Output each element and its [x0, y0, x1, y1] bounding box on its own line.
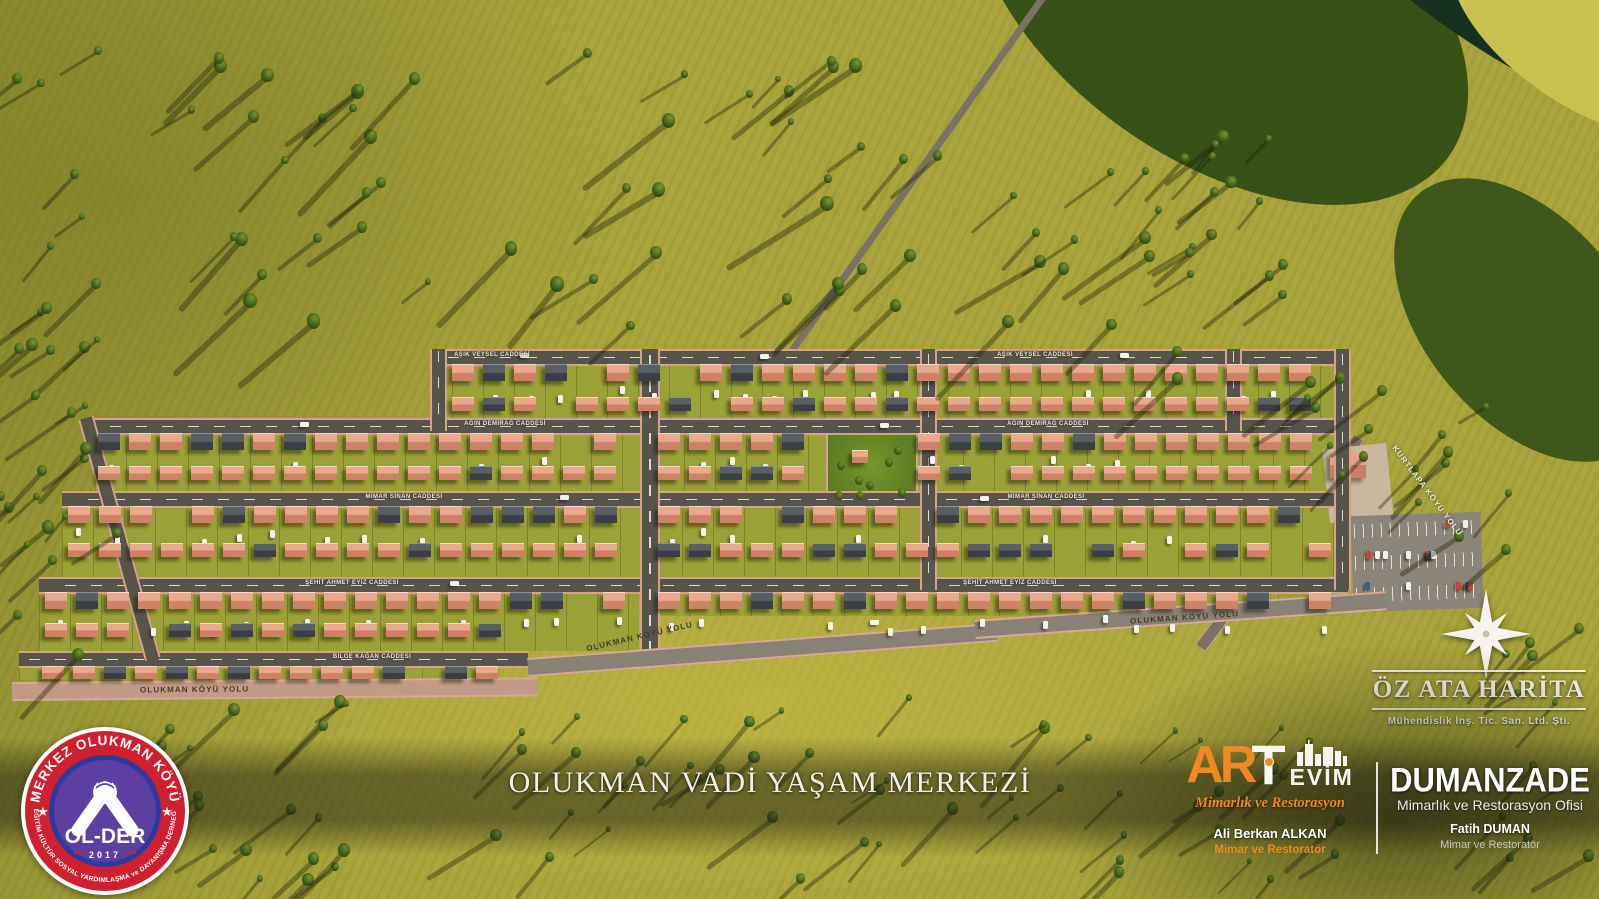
house	[129, 466, 151, 480]
house	[439, 433, 461, 450]
tree	[1212, 140, 1219, 148]
artevim-brand-evim: EVİM	[1290, 766, 1354, 789]
house	[1309, 543, 1331, 557]
house	[169, 592, 191, 609]
house	[347, 506, 369, 523]
house	[1103, 364, 1125, 381]
house	[720, 592, 742, 609]
car	[554, 618, 559, 626]
artevim-brand-ar: AR	[1186, 742, 1253, 789]
house	[346, 466, 368, 480]
house	[501, 466, 523, 480]
house	[1103, 397, 1125, 411]
house	[1135, 433, 1157, 450]
house	[751, 543, 773, 557]
street-label: ŞEHİT AHMET EYİZ CADDESİ	[305, 580, 399, 586]
tree-shadow	[545, 53, 589, 87]
house	[658, 592, 680, 609]
tree	[849, 58, 862, 73]
house	[576, 397, 598, 411]
house	[98, 466, 120, 480]
house	[658, 466, 680, 480]
car	[151, 628, 156, 636]
tree-shadow	[753, 710, 783, 731]
tree	[1217, 130, 1229, 143]
car	[730, 457, 735, 465]
tree-shadow	[876, 698, 910, 739]
tree-shadow	[704, 94, 751, 126]
dumanzade-person-title: Mimar ve Restoratör	[1387, 839, 1593, 851]
house	[160, 466, 182, 480]
tree	[376, 177, 386, 188]
tree	[652, 182, 665, 197]
car	[560, 495, 569, 500]
house	[824, 397, 846, 411]
svg-text:OL-DER: OL-DER	[65, 825, 146, 848]
parked-car	[1375, 551, 1380, 559]
house	[532, 433, 554, 450]
house	[1216, 543, 1238, 557]
house	[793, 364, 815, 381]
tree	[626, 321, 634, 330]
house	[844, 506, 866, 523]
tree	[12, 73, 22, 84]
tree	[0, 491, 5, 501]
house	[844, 592, 866, 609]
tree-shadow	[0, 615, 19, 672]
tree	[857, 142, 865, 151]
house	[918, 466, 940, 480]
tree	[519, 728, 526, 736]
house	[1011, 433, 1033, 450]
house	[378, 543, 400, 557]
tree-shadow	[826, 146, 862, 174]
tree-shadow	[238, 160, 286, 214]
tree	[1206, 229, 1217, 241]
house	[452, 397, 474, 411]
house	[222, 466, 244, 480]
house	[855, 364, 877, 381]
house	[377, 433, 399, 450]
house	[875, 543, 897, 557]
older-association-badge: MERKEZ OLUKMAN KÖYÜ EĞİTİM KÜLTÜR SOSYAL…	[20, 726, 190, 896]
house	[782, 466, 804, 480]
house	[937, 543, 959, 557]
tree	[80, 442, 92, 455]
tree	[933, 150, 943, 161]
house	[130, 543, 152, 557]
house	[192, 543, 214, 557]
park-tree	[837, 461, 845, 470]
house	[1165, 397, 1187, 411]
house	[355, 592, 377, 609]
house	[324, 623, 346, 637]
tree	[91, 278, 101, 289]
house	[948, 397, 970, 411]
house	[253, 433, 275, 450]
house	[1061, 592, 1083, 609]
tree	[796, 873, 806, 884]
car	[980, 496, 989, 501]
house	[1092, 543, 1114, 557]
house	[409, 543, 431, 557]
house	[1135, 466, 1157, 480]
house	[160, 433, 182, 450]
tree	[1265, 135, 1271, 142]
tree	[362, 187, 372, 198]
house	[316, 543, 338, 557]
street-label: AĞIN DEMİRAĞ CADDESİ	[464, 421, 546, 427]
tree	[681, 70, 688, 78]
car	[300, 422, 309, 427]
tree-shadow	[582, 120, 670, 191]
car	[730, 535, 735, 543]
house	[1154, 592, 1176, 609]
tree-shadow	[276, 237, 319, 271]
house	[638, 397, 660, 411]
tree-shadow	[43, 284, 98, 339]
tree	[353, 84, 364, 96]
house	[440, 543, 462, 557]
house	[1123, 592, 1145, 609]
house	[445, 666, 467, 679]
house	[1185, 592, 1207, 609]
tree	[1002, 315, 1014, 328]
street-label: MİMAR SİNAN CADDESİ	[366, 494, 443, 500]
car	[237, 534, 242, 542]
car	[1051, 456, 1056, 464]
house	[532, 466, 554, 480]
house	[355, 623, 377, 637]
tree-shadow	[575, 252, 658, 325]
tree	[746, 90, 754, 98]
house	[293, 623, 315, 637]
house	[1010, 397, 1032, 411]
house	[479, 592, 501, 609]
house	[73, 666, 95, 679]
house	[1259, 466, 1281, 480]
house	[1042, 466, 1064, 480]
house	[197, 666, 219, 679]
house	[470, 466, 492, 480]
house	[408, 466, 430, 480]
artevim-brand-t: T	[1251, 741, 1285, 789]
tree	[662, 113, 675, 128]
car	[270, 530, 275, 538]
house	[169, 623, 191, 637]
tree	[824, 174, 832, 183]
house	[720, 506, 742, 523]
house	[594, 433, 616, 450]
tree	[574, 713, 580, 720]
house	[377, 466, 399, 480]
house	[1185, 506, 1207, 523]
house	[448, 623, 470, 637]
tree	[82, 402, 88, 409]
house	[1104, 466, 1126, 480]
house	[501, 433, 523, 450]
credit-divider	[1376, 762, 1378, 854]
house	[658, 543, 680, 557]
car	[620, 386, 625, 394]
tree-shadow	[236, 321, 316, 390]
house	[254, 506, 276, 523]
house	[1042, 433, 1064, 450]
tree-shadow	[435, 249, 513, 329]
house	[45, 592, 67, 609]
tree-shadow	[22, 246, 52, 282]
tree	[1139, 231, 1151, 244]
house	[968, 506, 990, 523]
house	[545, 364, 567, 381]
parked-car	[1406, 582, 1411, 590]
house	[700, 364, 722, 381]
tree-shadow	[1017, 269, 1065, 324]
tree	[257, 875, 263, 882]
car	[880, 423, 889, 428]
house	[1216, 506, 1238, 523]
house	[669, 397, 691, 411]
tree	[820, 196, 834, 212]
house	[315, 466, 337, 480]
house	[352, 666, 374, 679]
street-label: AŞIK VEYSEL CADDESİ	[454, 352, 530, 358]
house	[813, 543, 835, 557]
tree	[1032, 228, 1040, 237]
tree-shadow	[53, 216, 82, 238]
dumanzade-person: Fatih DUMAN	[1387, 822, 1593, 836]
tree-shadow	[1113, 171, 1146, 207]
house	[378, 506, 400, 523]
street-label: MİMAR SİNAN CADDESİ	[1008, 494, 1085, 500]
tree	[1071, 235, 1079, 244]
house	[999, 592, 1021, 609]
tree	[257, 269, 267, 280]
house	[476, 666, 498, 679]
house	[1073, 466, 1095, 480]
tree	[281, 156, 289, 165]
house	[603, 592, 625, 609]
tree	[1107, 168, 1114, 176]
street-label: ŞEHİT AHMET EYİZ CADDESİ	[963, 580, 1057, 586]
tree	[248, 110, 260, 123]
tree	[906, 694, 912, 700]
house	[200, 592, 222, 609]
house	[658, 506, 680, 523]
car	[828, 622, 833, 630]
tree	[680, 715, 687, 723]
tree	[650, 246, 662, 259]
house	[875, 592, 897, 609]
house	[45, 623, 67, 637]
skyline-icon	[1296, 740, 1348, 766]
tree	[261, 68, 274, 82]
tree	[313, 233, 322, 243]
tree	[67, 407, 76, 417]
tree	[357, 221, 368, 233]
park-pavilion	[852, 450, 868, 463]
tree	[1225, 176, 1237, 189]
house	[285, 543, 307, 557]
tree	[622, 183, 631, 193]
house	[689, 592, 711, 609]
tree-shadow	[233, 878, 261, 899]
tree-shadow	[59, 50, 99, 76]
tree	[188, 105, 195, 113]
house	[200, 623, 222, 637]
house	[689, 466, 711, 480]
house	[1011, 466, 1033, 480]
car	[870, 620, 879, 625]
house	[689, 543, 711, 557]
tree	[112, 528, 121, 538]
house	[875, 506, 897, 523]
house	[751, 433, 773, 450]
house	[731, 364, 753, 381]
house	[192, 506, 214, 523]
house	[533, 543, 555, 557]
car	[558, 395, 563, 403]
house	[949, 466, 971, 480]
house	[782, 506, 804, 523]
tree	[1155, 206, 1162, 214]
tree	[1187, 270, 1195, 279]
house	[161, 543, 183, 557]
house	[980, 433, 1002, 450]
house	[231, 623, 253, 637]
star-icon: ★	[37, 804, 49, 819]
tree	[214, 52, 224, 63]
street-label: BİLGE KAĞAN CADDESİ	[333, 654, 411, 660]
svg-text:2017: 2017	[89, 850, 121, 860]
tree	[1505, 489, 1512, 497]
house	[1185, 543, 1207, 557]
house	[440, 506, 462, 523]
house	[595, 506, 617, 523]
street-vertical	[430, 349, 447, 431]
tree	[1339, 471, 1345, 478]
car	[617, 617, 622, 625]
tree-shadow	[970, 196, 1014, 235]
car	[856, 535, 861, 543]
house	[1041, 364, 1063, 381]
house	[262, 592, 284, 609]
house	[751, 592, 773, 609]
road-label-olukman-left: OLUKMAN KÖYÜ YOLU	[140, 685, 249, 695]
tree-shadow	[745, 878, 802, 899]
car	[714, 390, 719, 398]
tree	[307, 313, 321, 328]
park-tree	[894, 446, 902, 455]
house	[510, 592, 532, 609]
house	[979, 364, 1001, 381]
house	[514, 364, 536, 381]
tree	[788, 118, 794, 125]
house	[1197, 466, 1219, 480]
tree	[779, 707, 785, 714]
house	[594, 466, 616, 480]
house	[315, 433, 337, 450]
tree-shadow	[0, 395, 37, 445]
house	[293, 592, 315, 609]
house	[1041, 397, 1063, 411]
artevim-tagline: Mimarlık ve Restorasyon	[1166, 795, 1374, 812]
artevim-person: Ali Berkan ALKAN	[1166, 826, 1374, 841]
artevim-credit: ART EVİM Mimarlık ve Restorasyon Ali Ber…	[1166, 740, 1374, 856]
house	[1030, 592, 1052, 609]
house	[762, 364, 784, 381]
street-label: AĞIN DEMİRAĞ CADDESİ	[1007, 421, 1089, 427]
tree	[94, 336, 100, 343]
tree	[48, 555, 57, 565]
car	[76, 528, 81, 536]
house	[321, 666, 343, 679]
house	[1196, 397, 1218, 411]
tree-shadow	[888, 156, 939, 201]
house	[135, 666, 157, 679]
tree-shadow	[192, 117, 255, 173]
parked-car	[1383, 551, 1388, 559]
house	[968, 543, 990, 557]
house	[1309, 592, 1331, 609]
tree	[1256, 197, 1263, 205]
parked-car	[1463, 520, 1468, 528]
house	[448, 592, 470, 609]
house	[502, 543, 524, 557]
house	[408, 433, 430, 450]
house	[1228, 466, 1250, 480]
tree	[1305, 376, 1316, 388]
tree	[550, 276, 564, 291]
house	[483, 397, 505, 411]
project-title: OLUKMAN VADİ YAŞAM MERKEZİ	[420, 766, 1120, 800]
tree	[1058, 262, 1070, 275]
site-plan-scene: AŞIK VEYSEL CADDESİ AŞIK VEYSEL CADDESİ …	[0, 0, 1599, 899]
tree	[26, 338, 38, 351]
tree	[37, 79, 45, 87]
tree-shadow	[1242, 295, 1284, 328]
tree	[1185, 248, 1193, 257]
house	[107, 623, 129, 637]
house	[222, 433, 244, 450]
house	[76, 592, 98, 609]
house	[470, 433, 492, 450]
house	[720, 543, 742, 557]
tree	[37, 465, 47, 477]
tree	[1364, 424, 1372, 433]
house	[782, 592, 804, 609]
house	[1092, 592, 1114, 609]
house	[1123, 543, 1145, 557]
house	[1197, 433, 1219, 450]
house	[813, 506, 835, 523]
house	[285, 506, 307, 523]
house	[720, 433, 742, 450]
house	[1123, 506, 1145, 523]
house	[999, 506, 1021, 523]
tree	[349, 104, 357, 113]
tree	[228, 703, 240, 716]
house	[979, 397, 1001, 411]
house	[731, 397, 753, 411]
tree	[1172, 346, 1182, 357]
house	[886, 364, 908, 381]
house	[191, 433, 213, 450]
tree	[31, 390, 40, 400]
house	[793, 397, 815, 411]
house	[541, 592, 563, 609]
tree-shadow	[1175, 192, 1216, 231]
